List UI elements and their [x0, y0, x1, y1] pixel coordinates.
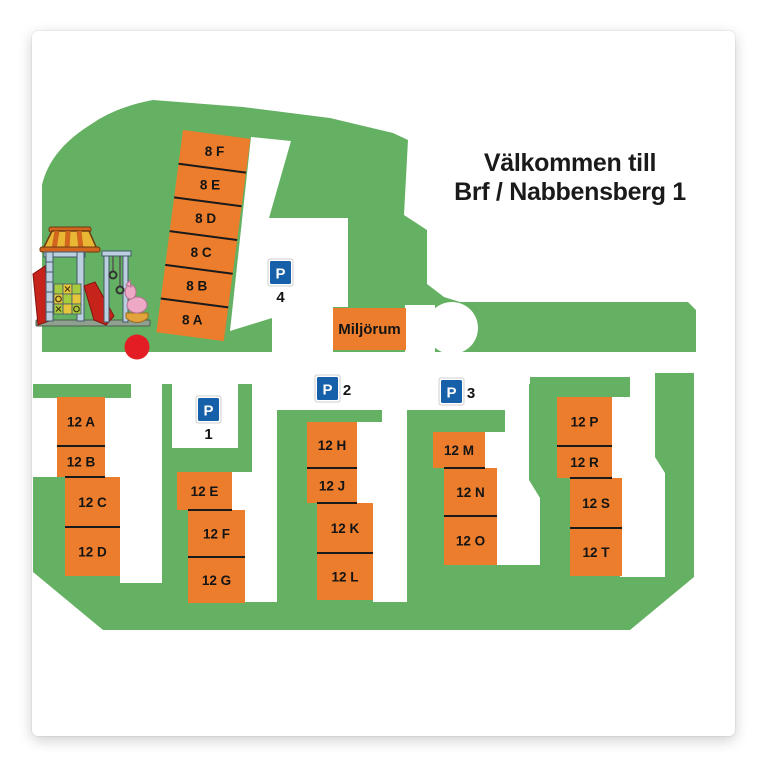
parking-icon-letter: P — [203, 403, 213, 420]
road-12m-right — [485, 432, 505, 468]
road-12pr-right — [612, 397, 630, 478]
building-label-12O: 12 O — [456, 534, 485, 549]
parking-icon-letter: P — [322, 382, 332, 399]
swing-post-left — [104, 256, 109, 322]
red-dot-marker — [125, 335, 150, 360]
road-east-notch — [655, 457, 665, 577]
building-label-12J: 12 J — [319, 479, 345, 494]
road-east — [630, 373, 655, 577]
building-label-12B: 12 B — [67, 455, 96, 470]
tower-eave — [40, 247, 100, 252]
road-12kl-right — [373, 503, 382, 602]
building-label-8C: 8 C — [191, 245, 212, 260]
building-label-12E: 12 E — [191, 484, 219, 499]
parking-number: 1 — [204, 426, 212, 443]
building-label-12T: 12 T — [582, 545, 610, 560]
road-12hj-right — [357, 422, 382, 503]
parking-icon-letter: P — [446, 385, 456, 402]
building-label-8A: 8 A — [182, 312, 203, 327]
building-label-12L: 12 L — [331, 570, 358, 585]
miljorum-building: Miljörum — [333, 308, 406, 350]
building-label-12P: 12 P — [571, 415, 599, 430]
road-12no-right — [497, 468, 505, 565]
parking-number: 4 — [276, 289, 285, 306]
building-label-8E: 8 E — [200, 178, 220, 193]
building-label-8D: 8 D — [195, 211, 216, 226]
title-line-2: Brf / Nabbensberg 1 — [405, 178, 735, 207]
swing-bar — [102, 251, 131, 256]
building-label-12F: 12 F — [203, 527, 230, 542]
parking-number: 3 — [467, 385, 475, 402]
road-12fg-right — [245, 510, 252, 602]
miljorum-label: Miljörum — [338, 321, 401, 338]
building-label-12D: 12 D — [78, 545, 107, 560]
building-label-12G: 12 G — [202, 573, 231, 588]
building-label-8B: 8 B — [186, 279, 207, 294]
building-label-12H: 12 H — [318, 438, 347, 453]
page-title: Välkommen till Brf / Nabbensberg 1 — [405, 149, 735, 207]
title-line-1: Välkommen till — [405, 149, 735, 178]
building-label-12A: 12 A — [67, 415, 95, 430]
page: { "title": {"line1": "Välkommen till", "… — [0, 0, 768, 768]
building-label-12S: 12 S — [582, 496, 610, 511]
building-label-12N: 12 N — [456, 485, 485, 500]
building-label-12K: 12 K — [331, 521, 360, 536]
parking-number: 2 — [343, 382, 351, 399]
site-map: 8 F8 E8 D8 C8 B8 A 12 A12 B12 C12 D12 E1… — [0, 0, 768, 768]
building-label-12C: 12 C — [78, 495, 107, 510]
building-label-12R: 12 R — [570, 455, 599, 470]
building-label-8F: 8 F — [205, 144, 225, 159]
parking-icon-letter: P — [275, 266, 285, 283]
building-label-12M: 12 M — [444, 443, 474, 458]
road-12e-right — [232, 472, 252, 510]
road-culdesac — [426, 302, 478, 354]
